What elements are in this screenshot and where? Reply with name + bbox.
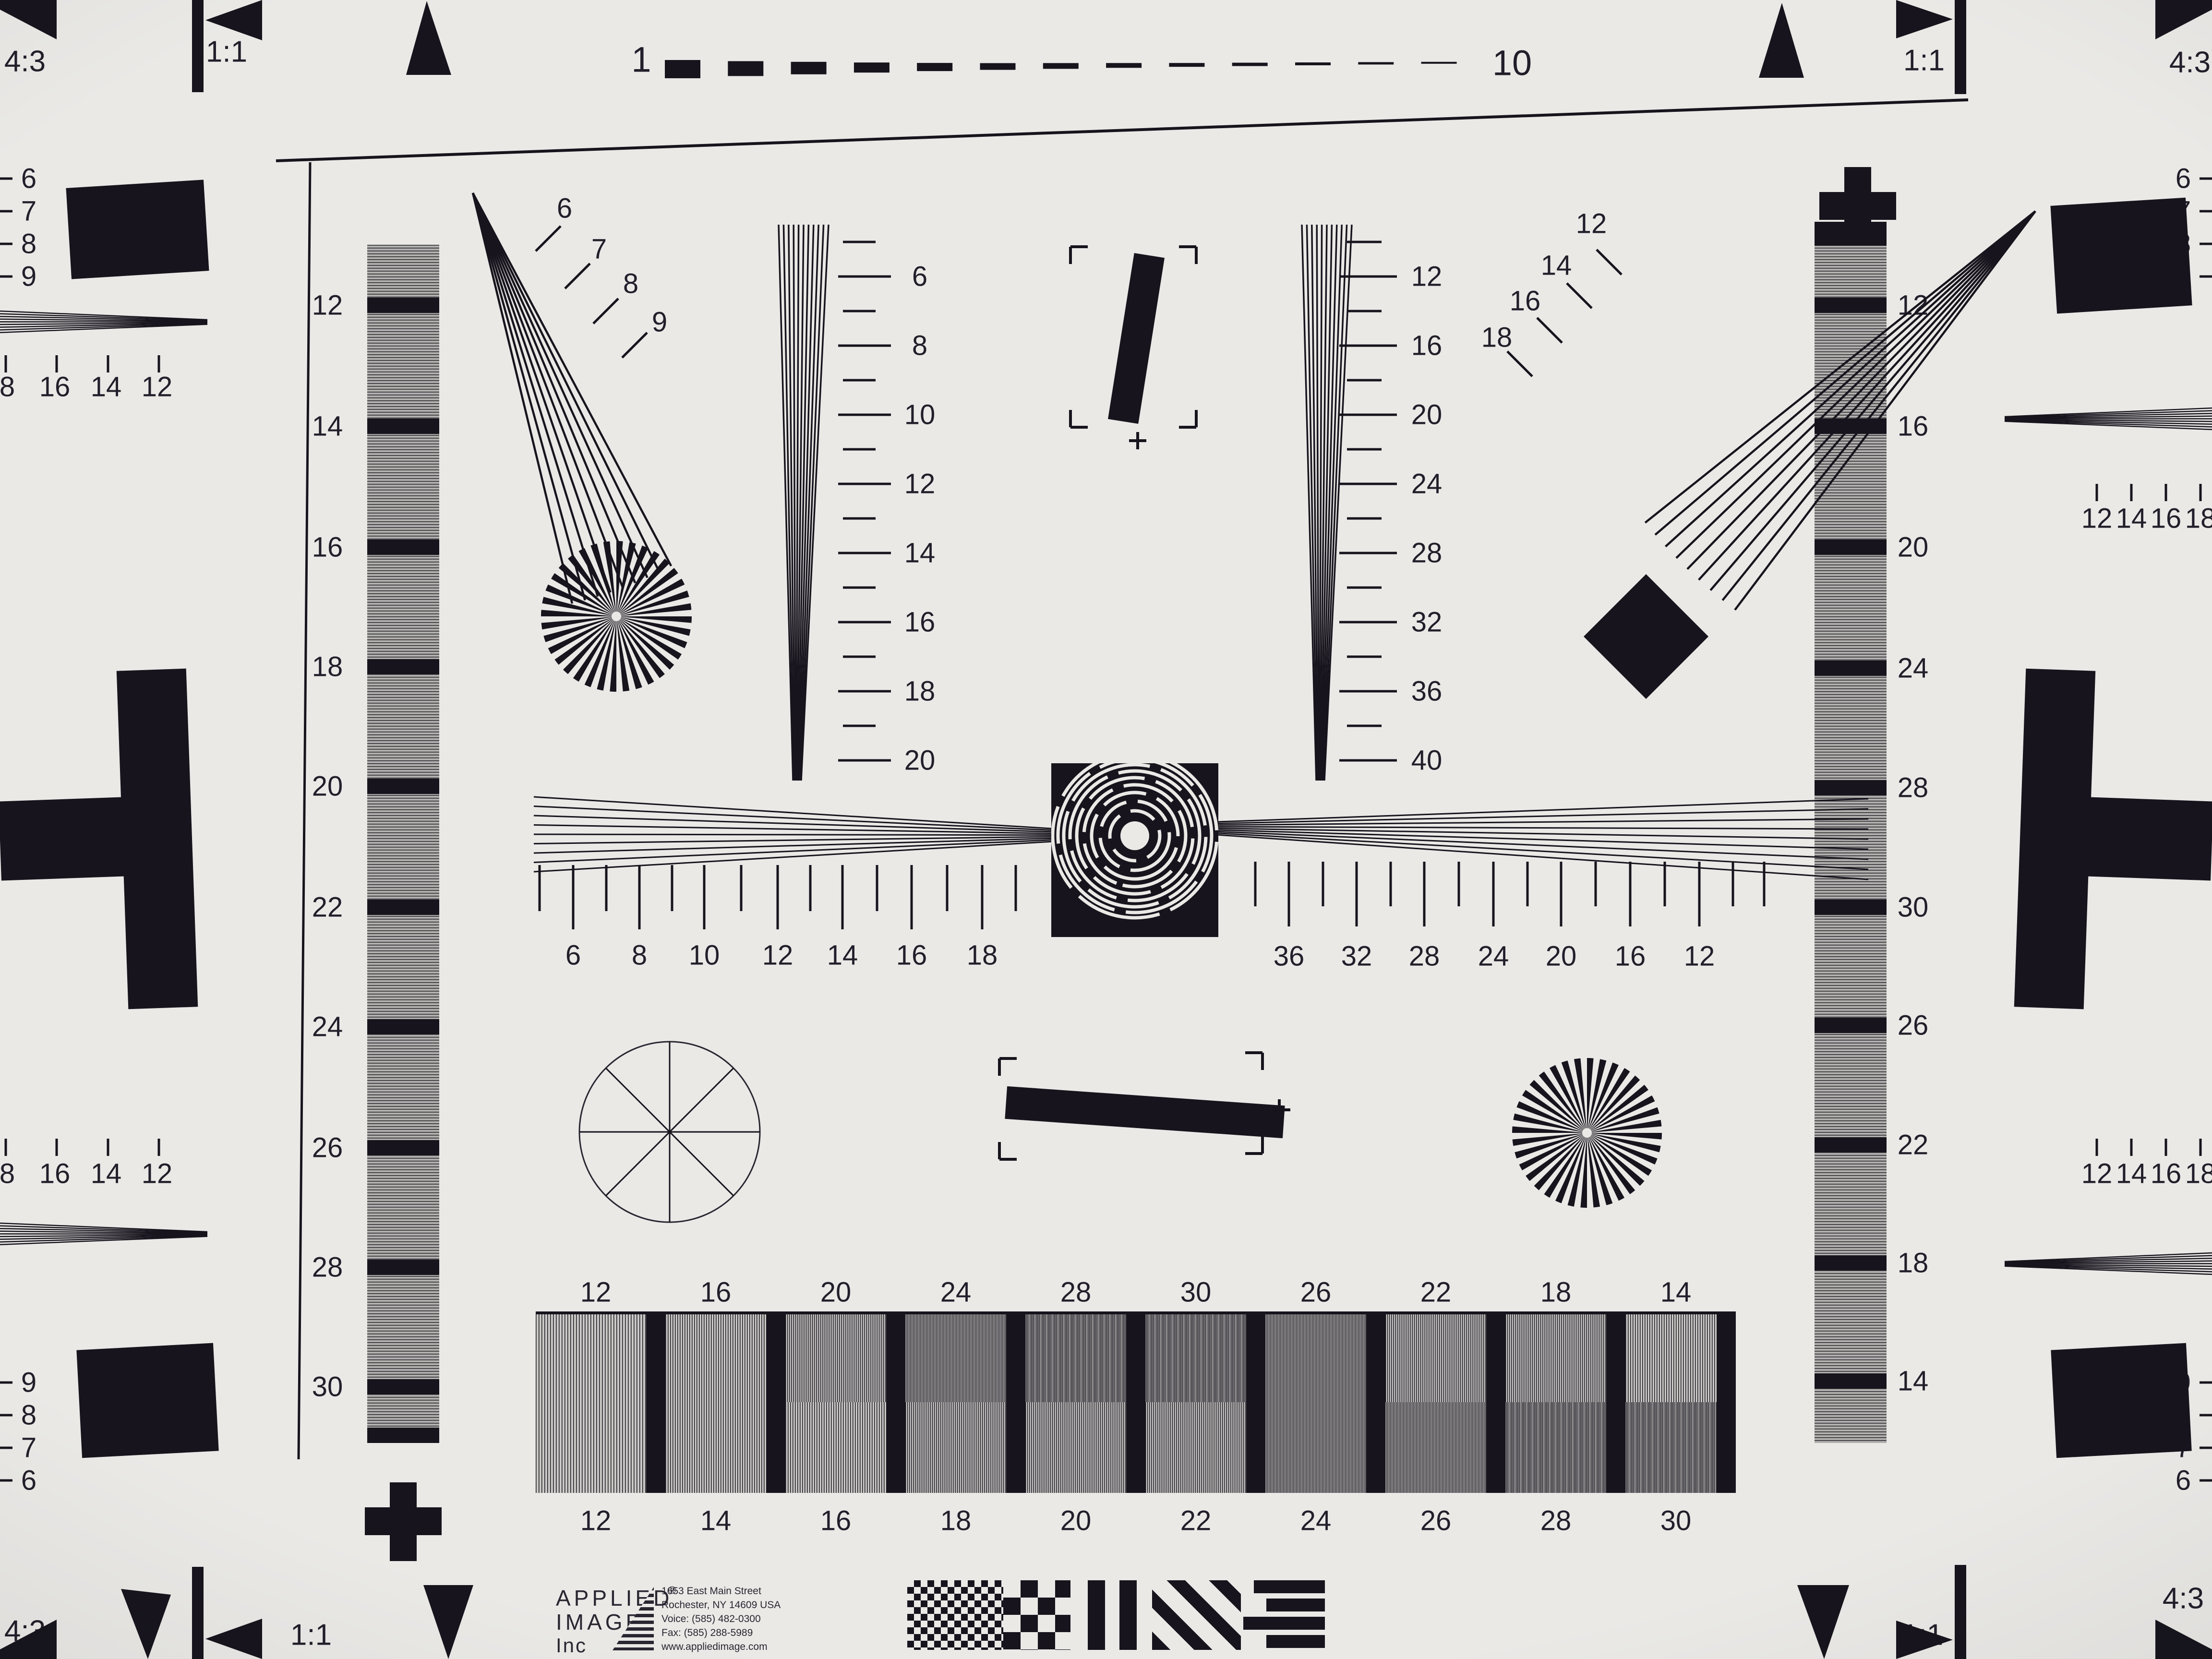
tilted-bar-lower [999, 1053, 1290, 1159]
top-dash-ruler [665, 60, 1457, 78]
center-target [1025, 726, 1244, 945]
edge-t-target-left [0, 669, 198, 1010]
left-vertical-scale-ticks [838, 242, 891, 760]
siemens-star-right [1512, 1058, 1662, 1208]
edge-t-target-right [2014, 669, 2212, 1010]
edge-tick-rows [6, 355, 2200, 1156]
chart-graphics [0, 0, 2212, 1659]
right-vertical-wedge [1302, 225, 1352, 781]
segment-wheel [579, 1042, 760, 1222]
tilted-bar-upper [1070, 247, 1196, 449]
tl-diagonal-fan [473, 193, 671, 603]
left-vertical-wedge [779, 225, 829, 781]
siemens-star-left [541, 541, 692, 692]
fan-ticks [536, 226, 1622, 376]
diamond [1584, 574, 1708, 699]
resolution-test-chart: 12141618202224262830 1216202428302622181… [0, 0, 2212, 1659]
